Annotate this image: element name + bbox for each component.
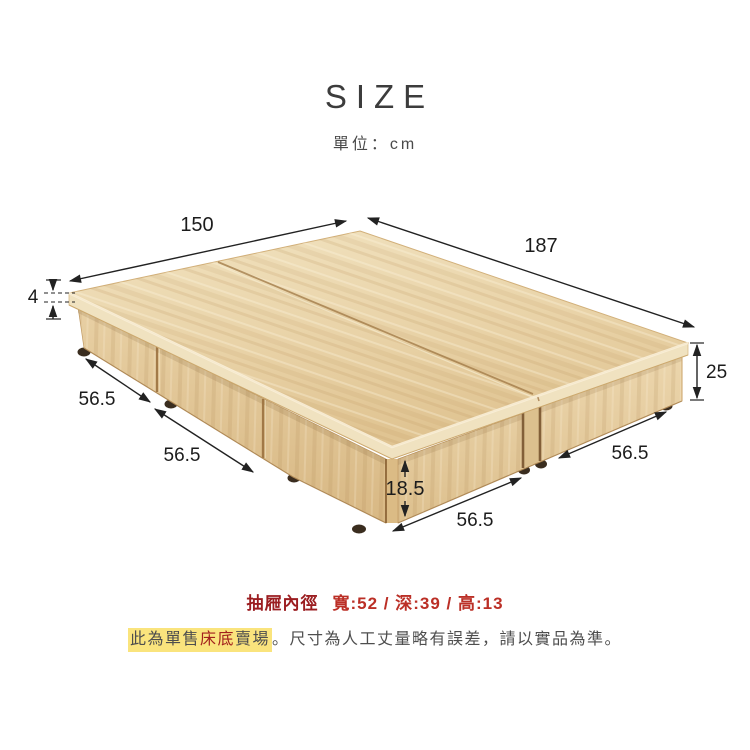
dim-label-565-a: 56.5 xyxy=(79,389,116,410)
drawer-spec-value: 寬:52 / 深:39 / 高:13 xyxy=(332,594,503,613)
dim-label-4: 4 xyxy=(28,287,39,308)
dim-label-187: 187 xyxy=(524,235,557,257)
note-red-keyword: 床底 xyxy=(200,631,235,648)
note-line: 此為單售床底賣場。尺寸為人工丈量略有誤差，請以實品為準。 xyxy=(0,625,750,649)
note-highlight: 此為單售床底賣場 xyxy=(128,628,272,652)
half-gap-sliver xyxy=(523,406,540,468)
bed-base-illustration xyxy=(69,231,688,534)
note-mid: 賣場 xyxy=(235,631,270,648)
product-size-page: SIZE 單位：cm xyxy=(0,0,750,750)
bed-foot xyxy=(352,525,366,534)
drawer-spec-line: 抽屜內徑寬:52 / 深:39 / 高:13 xyxy=(0,589,750,614)
note-rest: 。尺寸為人工丈量略有誤差，請以實品為準。 xyxy=(272,631,622,648)
dim-top-thickness-4: 4 xyxy=(28,280,75,319)
dim-label-185: 18.5 xyxy=(386,478,425,500)
dim-label-565-d: 56.5 xyxy=(612,443,649,464)
dim-height-25: 25 xyxy=(690,343,727,400)
dim-label-150: 150 xyxy=(180,214,213,236)
dim-label-25: 25 xyxy=(706,362,727,383)
dim-label-565-c: 56.5 xyxy=(457,510,494,531)
drawer-spec-label: 抽屜內徑 xyxy=(246,594,318,613)
dim-label-565-b: 56.5 xyxy=(164,445,201,466)
note-pre: 此為單售 xyxy=(130,631,200,648)
